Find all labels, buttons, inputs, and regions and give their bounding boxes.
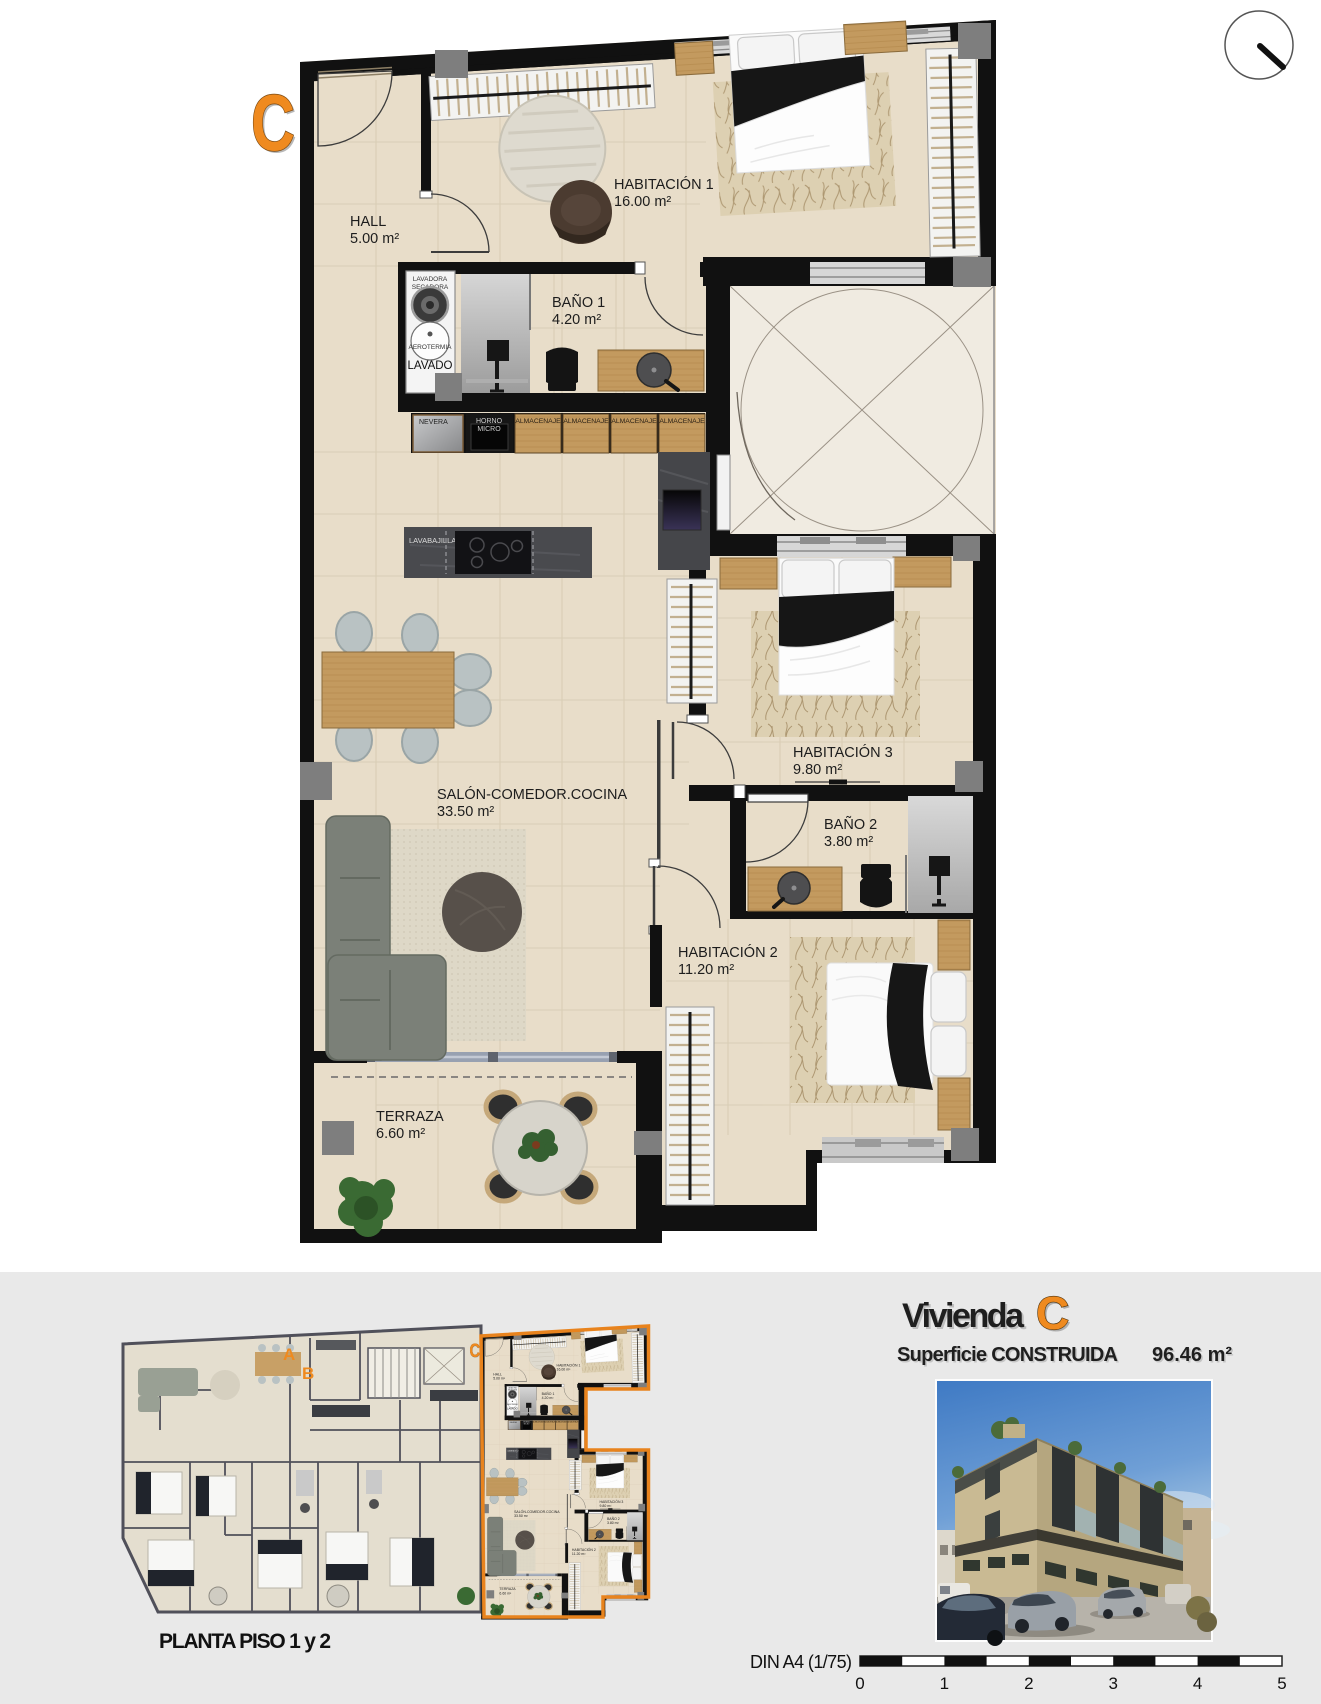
svg-text:HABITACIÓN 2: HABITACIÓN 2	[678, 944, 778, 961]
svg-text:TERRAZA: TERRAZA	[376, 1109, 444, 1125]
svg-text:ALMACENAJE: ALMACENAJE	[563, 418, 609, 425]
svg-text:ALMACENAJE: ALMACENAJE	[659, 418, 705, 425]
svg-text:4: 4	[1193, 1674, 1202, 1693]
svg-text:HORNO: HORNO	[476, 418, 503, 425]
svg-text:BAÑO 2: BAÑO 2	[824, 816, 877, 833]
svg-text:33.50 m²: 33.50 m²	[437, 804, 494, 820]
svg-text:SALÓN-COMEDOR.COCINA: SALÓN-COMEDOR.COCINA	[437, 786, 627, 803]
svg-text:LAVADO: LAVADO	[408, 360, 453, 372]
svg-text:1: 1	[940, 1674, 949, 1693]
svg-text:C: C	[251, 79, 295, 168]
svg-text:NEVERA: NEVERA	[419, 419, 448, 426]
svg-text:5: 5	[1277, 1674, 1286, 1693]
svg-text:HABITACIÓN 1: HABITACIÓN 1	[614, 176, 714, 193]
svg-text:AEROTERMIA: AEROTERMIA	[409, 344, 453, 351]
svg-text:5.00 m²: 5.00 m²	[350, 231, 399, 247]
svg-text:3.80 m²: 3.80 m²	[824, 834, 873, 850]
svg-text:0: 0	[855, 1674, 864, 1693]
svg-text:3: 3	[1108, 1674, 1117, 1693]
svg-text:6.60 m²: 6.60 m²	[376, 1126, 425, 1142]
svg-text:B: B	[302, 1364, 314, 1383]
svg-text:9.80 m²: 9.80 m²	[793, 762, 842, 778]
svg-text:4.20 m²: 4.20 m²	[552, 312, 601, 328]
svg-text:A: A	[283, 1345, 295, 1364]
svg-text:ALMACENAJE: ALMACENAJE	[611, 418, 657, 425]
svg-text:MICRO: MICRO	[477, 426, 501, 433]
svg-text:ALMACENAJE: ALMACENAJE	[515, 418, 561, 425]
svg-text:PLANTA PISO 1 y 2: PLANTA PISO 1 y 2	[159, 1630, 331, 1653]
svg-text:HALL: HALL	[350, 214, 386, 230]
svg-text:96.46 m²: 96.46 m²	[1152, 1344, 1232, 1366]
svg-text:HABITACIÓN 3: HABITACIÓN 3	[793, 744, 893, 761]
svg-text:BAÑO 1: BAÑO 1	[552, 294, 605, 311]
svg-text:DIN A4 (1/75): DIN A4 (1/75)	[750, 1652, 852, 1672]
svg-text:11.20 m²: 11.20 m²	[678, 962, 734, 978]
svg-text:2: 2	[1024, 1674, 1033, 1693]
svg-text:Superficie CONSTRUIDA: Superficie CONSTRUIDA	[897, 1344, 1118, 1366]
svg-text:16.00 m²: 16.00 m²	[614, 194, 671, 210]
svg-text:LAVADORA: LAVADORA	[413, 276, 448, 283]
svg-text:LAVABAJILLAS: LAVABAJILLAS	[409, 536, 461, 545]
svg-text:Vivienda: Vivienda	[902, 1297, 1025, 1335]
svg-text:C: C	[1036, 1287, 1069, 1339]
